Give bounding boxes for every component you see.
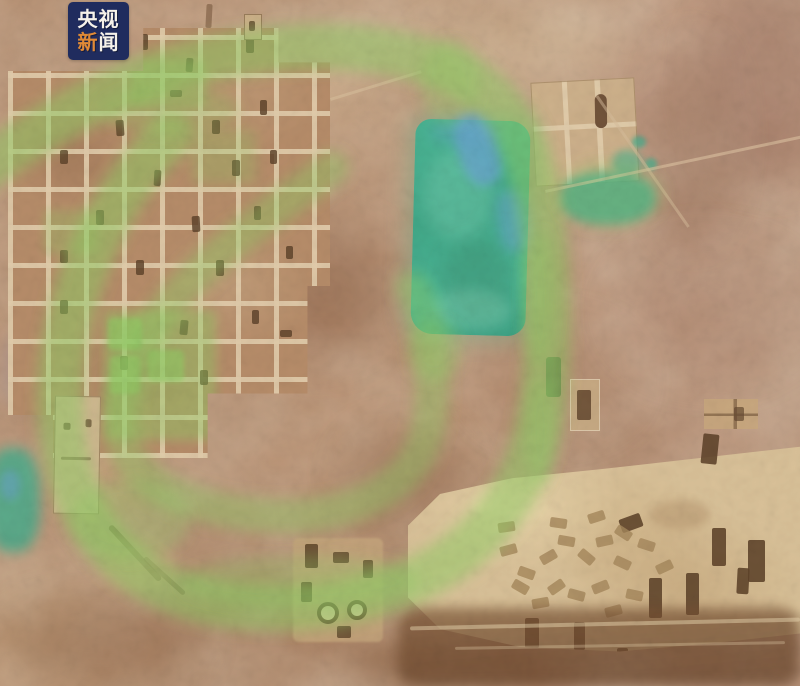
ruin-feature-mark: [363, 560, 373, 578]
terrain-light-patch: [100, 538, 174, 592]
logo-line2-char: 闻: [99, 30, 120, 54]
terrain-shade-patch: [620, 250, 800, 370]
ruin-feature-mark: [577, 390, 591, 420]
terrain-shade-patch: [0, 600, 200, 686]
grave-pit-mark: [192, 216, 201, 232]
excavation-feature-mark: [499, 543, 518, 557]
grave-pit-mark: [270, 150, 277, 164]
ruin-structure: [570, 379, 600, 431]
trench-feature-mark: [63, 423, 70, 430]
excavation-feature-mark: [577, 548, 596, 567]
grave-pit-mark: [154, 170, 162, 186]
excavation-feature-mark: [497, 521, 515, 533]
teal-patch: [560, 172, 655, 224]
excavation-feature-mark: [625, 588, 644, 601]
grave-pit-mark: [60, 150, 68, 164]
ruin-feature-mark: [734, 407, 744, 421]
vegetation-patch: [108, 318, 142, 350]
field-light-blob: [515, 498, 549, 520]
tomb-pit-mark: [748, 540, 765, 582]
excavation-feature-mark: [557, 535, 575, 548]
ruin-structure: [244, 14, 262, 40]
excavation-feature-mark: [547, 578, 567, 596]
logo-line2-accent-char: 新: [78, 30, 99, 54]
teal-patch-left-edge: [0, 448, 40, 552]
grave-pit-mark: [286, 246, 293, 259]
excavation-feature-mark: [637, 538, 656, 553]
ruin-feature-mark: [305, 544, 318, 568]
excavation-feature-mark: [517, 565, 536, 580]
grave-pit-mark: [252, 310, 259, 324]
grave-pit-mark: [280, 330, 292, 337]
excavation-feature-mark: [511, 578, 531, 595]
ruin-feature-mark: [301, 582, 312, 602]
excavation-feature-mark: [587, 510, 606, 525]
field-dark-blob: [650, 500, 710, 530]
excavation-feature-mark: [613, 555, 633, 571]
ruin-feature-mark: [546, 357, 561, 397]
excavation-feature-mark: [549, 517, 567, 529]
trench-feature-mark: [85, 419, 91, 427]
grave-pit-mark: [260, 100, 267, 115]
well-feature: [317, 602, 339, 624]
aerial-photo-archaeological-site: 央视 新闻: [0, 0, 800, 686]
ruin-feature-mark: [337, 626, 351, 638]
long-trench: [53, 396, 101, 515]
blue-tint: [0, 470, 20, 500]
excavation-feature-mark: [591, 579, 611, 595]
ruin-structure: [704, 399, 758, 429]
excavation-grid: [8, 28, 330, 458]
grave-pit-mark: [115, 120, 124, 137]
ruin-feature-mark: [249, 21, 255, 31]
excavation-feature-mark: [567, 588, 586, 602]
grave-pit-mark: [60, 300, 68, 314]
vegetation-patch: [44, 210, 98, 254]
excavation-feature-mark: [595, 534, 614, 547]
vegetation-patch: [148, 350, 184, 382]
logo-line2: 新闻: [78, 31, 120, 54]
tomb-pit-mark: [736, 568, 749, 595]
well-feature: [347, 600, 367, 620]
trench-feature-mark: [61, 457, 91, 461]
pond-blue-tint: [432, 118, 502, 144]
excavation-feature-mark: [655, 559, 675, 575]
excavation-feature-mark: [539, 548, 559, 565]
grave-pit-mark: [254, 206, 261, 220]
vegetation-patch: [110, 356, 140, 394]
terrain-light-patch: [430, 20, 630, 80]
tomb-pit-mark: [700, 433, 719, 465]
ruin-feature-mark: [205, 4, 212, 28]
vegetation-patch: [192, 130, 256, 184]
terrain-shade-patch: [652, 40, 732, 240]
cctv-news-logo: 央视 新闻: [68, 2, 129, 60]
logo-line1: 央视: [78, 8, 120, 31]
ruin-feature-mark: [333, 552, 349, 563]
grave-pit-mark: [216, 260, 224, 276]
tomb-pit-mark: [712, 528, 726, 566]
field-light-blob: [470, 490, 516, 518]
grave-pit-mark: [136, 260, 144, 275]
ruin-compound: [293, 528, 388, 646]
